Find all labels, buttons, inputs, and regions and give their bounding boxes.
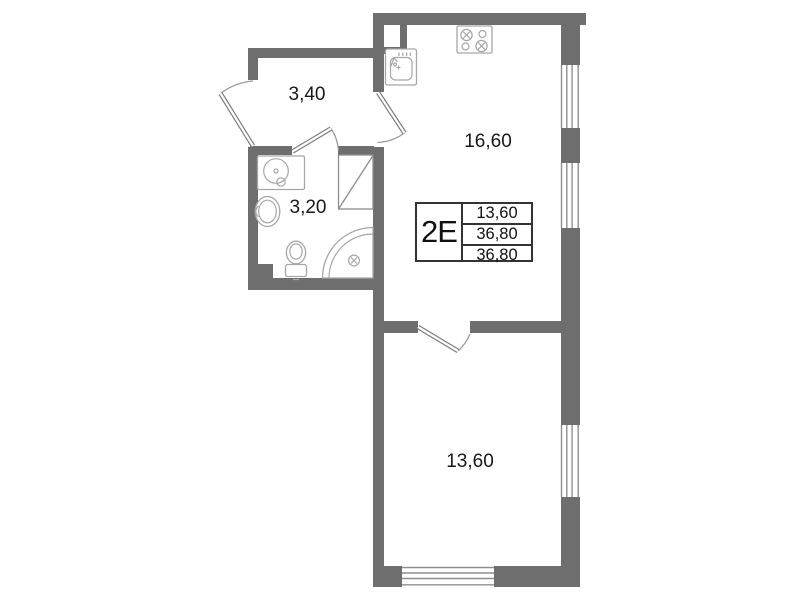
kitchen-sink-icon	[386, 49, 417, 85]
entrance-door-swing-icon	[221, 81, 254, 146]
unit-type-label: 2Е	[417, 204, 463, 260]
hallway-area-label: 3,40	[289, 84, 326, 106]
bathroom-area-label: 3,20	[290, 197, 327, 219]
floor-plan: 3,40 3,20 16,60 13,60 2Е 13,60 36,80 36,…	[0, 0, 799, 600]
unit-area-rows: 13,60 36,80 36,80	[463, 204, 531, 260]
bathroom-door-swing-icon	[293, 129, 339, 152]
window-icon	[402, 567, 494, 587]
fixtures-layer	[0, 0, 799, 600]
kitchen-living-area-label: 16,60	[464, 131, 512, 153]
bedroom-area-label: 13,60	[446, 451, 494, 473]
unit-info-table: 2Е 13,60 36,80 36,80	[415, 202, 533, 262]
kitchen-door-swing-icon	[378, 93, 405, 143]
bedroom-door-swing-icon	[418, 327, 470, 351]
wardrobe-icon	[339, 155, 374, 209]
window-icon	[561, 425, 581, 497]
bathroom-sink-icon	[255, 197, 280, 227]
shower-icon	[323, 228, 374, 279]
stove-icon	[457, 26, 492, 53]
unit-area-row: 13,60	[463, 204, 531, 223]
washing-machine-icon	[258, 156, 305, 190]
unit-area-row: 36,80	[463, 244, 531, 265]
window-icon	[561, 163, 581, 228]
window-icon	[561, 65, 581, 128]
toilet-icon	[286, 241, 307, 279]
unit-area-row: 36,80	[463, 223, 531, 244]
